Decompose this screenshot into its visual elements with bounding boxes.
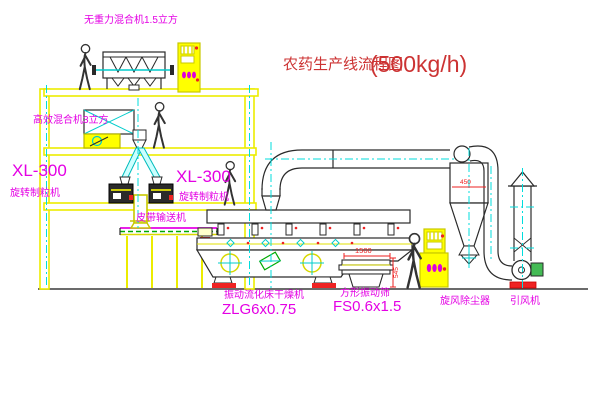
sieve-base bbox=[349, 274, 383, 287]
granulator-right-machine bbox=[149, 184, 173, 203]
cabinet-indicator-icon bbox=[427, 264, 442, 272]
induced-draft-fan bbox=[510, 261, 543, 289]
dryer-foot-pad bbox=[212, 283, 236, 288]
granulator-right-model: XL-300 bbox=[176, 167, 231, 186]
building-slab-mid bbox=[44, 148, 256, 155]
dryer-foot-pad bbox=[312, 283, 336, 288]
diagram-title-capacity: (500kg/h) bbox=[370, 51, 467, 77]
person-icon bbox=[154, 103, 165, 148]
granulator-left-name: 旋转制粒机 bbox=[10, 186, 60, 199]
sieve-length-dim: 1500 bbox=[355, 246, 372, 255]
cabinet-indicator-icon bbox=[182, 72, 196, 79]
dryer-foot bbox=[314, 277, 332, 283]
fan-label: 引风机 bbox=[510, 294, 540, 307]
gravity-mixer-label: 无重力混合机1.5立方 bbox=[84, 13, 178, 26]
dryer-model-label: ZLG6x0.75 bbox=[222, 301, 296, 318]
cyclone-dim: 450 bbox=[460, 179, 471, 186]
dryer-hood bbox=[207, 210, 410, 223]
dryer-name-label: 振动流化床干燥机 bbox=[224, 288, 304, 301]
cyclone-outlet-port bbox=[454, 146, 470, 162]
high-efficiency-mixer-label: 高效混合机3立方 bbox=[33, 113, 109, 126]
dryer-foot bbox=[214, 277, 232, 283]
person-icon bbox=[408, 234, 421, 288]
cyclone-label: 旋风除尘器 bbox=[440, 294, 490, 307]
belt-conveyor-label: 皮带输送机 bbox=[136, 211, 186, 224]
cabinet-indicator-light bbox=[441, 234, 444, 237]
building-slab-top bbox=[44, 89, 258, 96]
cabinet-indicator-light bbox=[195, 46, 198, 49]
granulator-left-machine bbox=[109, 184, 133, 203]
process-flow-diagram: 1500 545 450 无重力混合机1.5立方 高效混合机3立方 XL-300… bbox=[0, 0, 600, 403]
sieve-height-dim: 545 bbox=[393, 267, 400, 278]
vibrating-sieve bbox=[339, 260, 393, 287]
cad-drawing: 1500 545 450 无重力混合机1.5立方 高效混合机3立方 XL-300… bbox=[0, 0, 600, 403]
gravity-mixer bbox=[92, 52, 174, 90]
granulator-left-model: XL-300 bbox=[12, 161, 67, 180]
fan-motor bbox=[531, 263, 543, 276]
sieve-model-label: FS0.6x1.5 bbox=[333, 298, 401, 315]
control-cabinet-right bbox=[420, 229, 448, 287]
person-icon bbox=[80, 45, 91, 90]
control-cabinet-top bbox=[178, 43, 200, 92]
granulator-right-name: 旋转制粒机 bbox=[179, 190, 229, 203]
